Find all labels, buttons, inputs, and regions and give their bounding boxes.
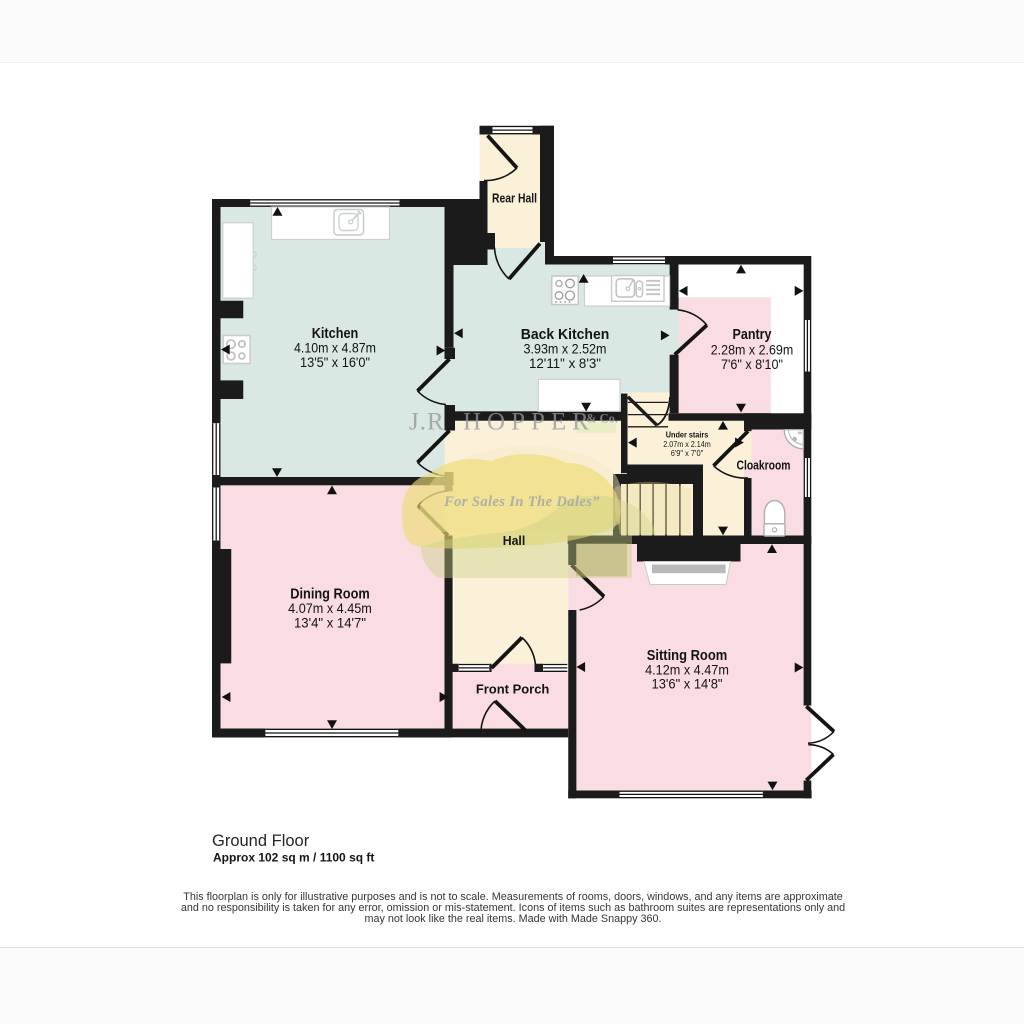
svg-text:4.12m x 4.47m: 4.12m x 4.47m [645,663,729,678]
svg-text:may not look like the real ite: may not look like the real items. Made w… [364,913,661,925]
svg-text:13'5" x 16'0": 13'5" x 16'0" [300,355,370,370]
svg-text:Sitting Room: Sitting Room [647,648,728,664]
svg-text:2.07m x 2.14m: 2.07m x 2.14m [663,440,711,449]
svg-text:3.93m x 2.52m: 3.93m x 2.52m [524,342,607,357]
svg-text:Hall: Hall [503,534,526,548]
svg-text:13'4" x 14'7": 13'4" x 14'7" [294,615,366,630]
svg-text:4.07m x 4.45m: 4.07m x 4.45m [288,601,372,616]
svg-text:Cloakroom: Cloakroom [737,458,791,472]
svg-text:Dining Room: Dining Room [290,586,370,602]
svg-text:J.R: J.R [409,409,445,436]
svg-text:Pantry: Pantry [733,327,772,343]
svg-text:6'9" x 7'0": 6'9" x 7'0" [671,449,704,458]
svg-text:13'6" x 14'8": 13'6" x 14'8" [652,677,723,692]
svg-text:12'11" x 8'3": 12'11" x 8'3" [529,356,601,371]
svg-text:HOPPER: HOPPER [463,409,595,436]
svg-text:Ground Floor: Ground Floor [212,832,310,850]
svg-text:& Co.: & Co. [586,412,618,426]
svg-text:7'6" x 8'10": 7'6" x 8'10" [721,357,783,372]
svg-text:Approx 102 sq m / 1100 sq ft: Approx 102 sq m / 1100 sq ft [213,851,374,865]
svg-text:For Sales In The Dales”: For Sales In The Dales” [443,494,600,510]
svg-text:Rear Hall: Rear Hall [492,192,537,206]
svg-text:Front Porch: Front Porch [476,683,550,697]
svg-text:4.10m x 4.87m: 4.10m x 4.87m [294,341,376,356]
svg-text:2.28m x 2.69m: 2.28m x 2.69m [711,343,794,358]
svg-text:Under stairs: Under stairs [666,430,709,439]
